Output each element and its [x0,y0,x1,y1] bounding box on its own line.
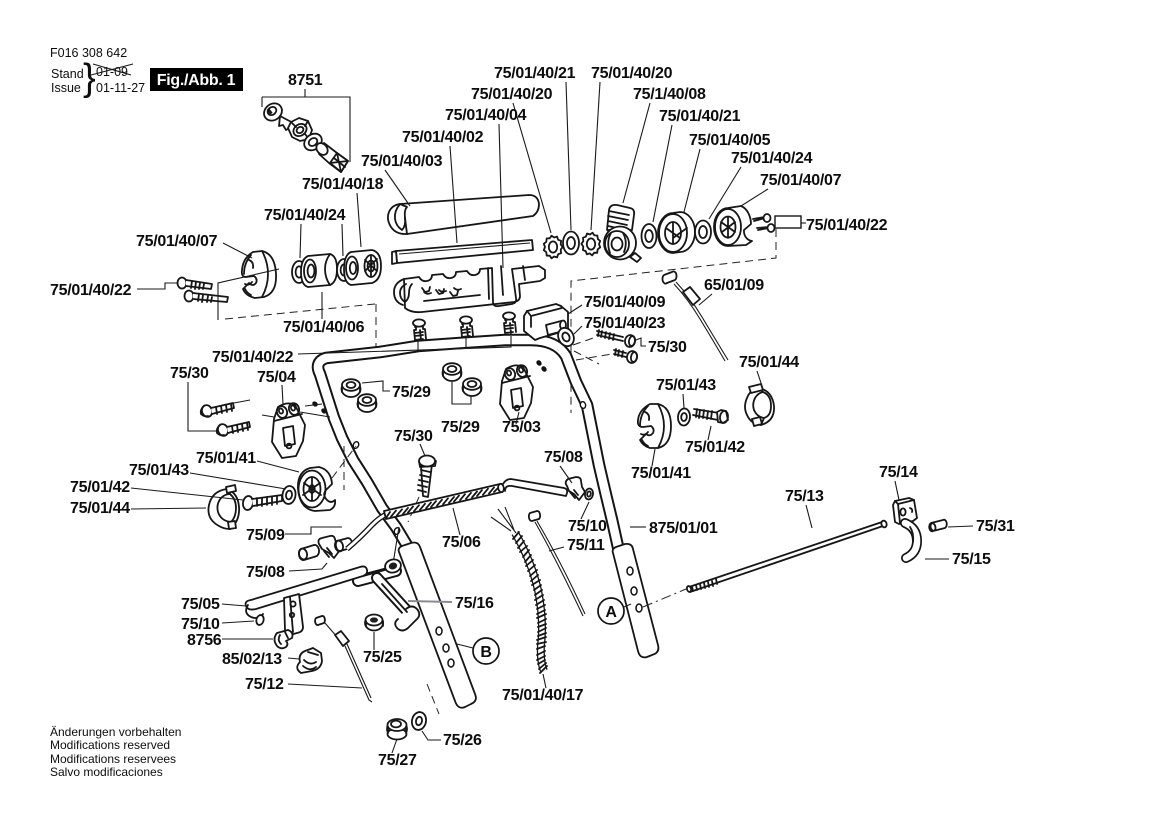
svg-text:65/01/09: 65/01/09 [704,277,764,294]
svg-text:75/26: 75/26 [443,732,482,749]
svg-text:85/02/13: 85/02/13 [222,651,282,668]
svg-text:75/01/40/06: 75/01/40/06 [283,319,365,336]
svg-text:75/01/40/07: 75/01/40/07 [136,233,218,250]
svg-text:75/29: 75/29 [441,419,480,436]
svg-text:75/01/40/07: 75/01/40/07 [760,172,842,189]
svg-text:75/01/42: 75/01/42 [70,479,130,496]
svg-text:75/11: 75/11 [567,537,605,554]
svg-text:75/01/40/22: 75/01/40/22 [806,217,888,234]
svg-text:75/01/40/24: 75/01/40/24 [264,207,346,224]
svg-text:75/01/40/20: 75/01/40/20 [471,86,553,103]
svg-text:75/01/40/18: 75/01/40/18 [302,176,384,193]
svg-text:75/01/40/03: 75/01/40/03 [361,153,443,170]
svg-text:75/01/40/22: 75/01/40/22 [50,282,132,299]
svg-text:A: A [605,604,617,621]
svg-text:Fig./Abb. 1: Fig./Abb. 1 [157,72,236,89]
svg-text:75/01/42: 75/01/42 [685,439,745,456]
svg-text:75/15: 75/15 [952,551,991,568]
svg-text:75/01/40/22: 75/01/40/22 [212,349,294,366]
svg-text:75/05: 75/05 [181,596,220,613]
svg-text:75/25: 75/25 [363,649,402,666]
svg-text:Änderungen vorbehalten: Änderungen vorbehalten [50,725,181,739]
svg-text:75/01/40/09: 75/01/40/09 [584,294,666,311]
svg-text:75/30: 75/30 [648,339,687,356]
svg-text:75/01/40/21: 75/01/40/21 [659,108,741,125]
svg-text:75/01/41: 75/01/41 [631,465,691,482]
svg-text:Issue: Issue [51,81,81,95]
svg-text:75/01/40/02: 75/01/40/02 [402,129,484,146]
svg-text:75/01/43: 75/01/43 [656,377,716,394]
svg-text:75/09: 75/09 [246,527,285,544]
svg-text:75/08: 75/08 [246,564,285,581]
svg-text:75/01/40/05: 75/01/40/05 [689,132,771,149]
svg-text:75/10: 75/10 [568,518,607,535]
svg-text:75/01/40/23: 75/01/40/23 [584,315,666,332]
svg-text:Salvo modificaciones: Salvo modificaciones [50,765,163,779]
svg-text:75/08: 75/08 [544,449,583,466]
svg-text:75/01/40/21: 75/01/40/21 [494,65,576,82]
svg-text:875/01/01: 875/01/01 [649,520,718,537]
svg-text:75/27: 75/27 [378,752,417,769]
svg-text:75/29: 75/29 [392,384,431,401]
svg-text:8751: 8751 [288,72,323,89]
svg-text:Modifications reserved: Modifications reserved [50,738,170,752]
svg-text:75/04: 75/04 [257,369,296,386]
svg-text:75/12: 75/12 [245,676,284,693]
svg-text:B: B [480,644,491,661]
svg-text:75/14: 75/14 [879,464,918,481]
svg-text:75/06: 75/06 [442,534,481,551]
svg-text:75/13: 75/13 [785,488,824,505]
svg-text:Modifications reservees: Modifications reservees [50,752,176,766]
svg-text:75/30: 75/30 [394,428,433,445]
svg-text:75/03: 75/03 [502,419,541,436]
svg-text:75/01/41: 75/01/41 [196,450,256,467]
svg-text:75/01/43: 75/01/43 [129,462,189,479]
svg-text:75/01/40/20: 75/01/40/20 [591,65,673,82]
svg-text:75/01/40/17: 75/01/40/17 [502,687,584,704]
svg-text:}: } [83,57,96,99]
svg-text:Stand: Stand [51,67,84,81]
svg-text:75/01/44: 75/01/44 [70,500,130,517]
svg-text:75/1/40/08: 75/1/40/08 [633,86,706,103]
svg-text:75/10: 75/10 [181,616,220,633]
svg-text:75/31: 75/31 [976,518,1015,535]
svg-text:8756: 8756 [187,632,222,649]
svg-text:75/01/44: 75/01/44 [739,354,799,371]
svg-text:75/01/40/04: 75/01/40/04 [445,107,527,124]
svg-text:75/16: 75/16 [455,595,494,612]
svg-text:75/01/40/24: 75/01/40/24 [731,150,813,167]
svg-text:01-11-27: 01-11-27 [96,81,145,95]
svg-text:75/30: 75/30 [170,365,209,382]
